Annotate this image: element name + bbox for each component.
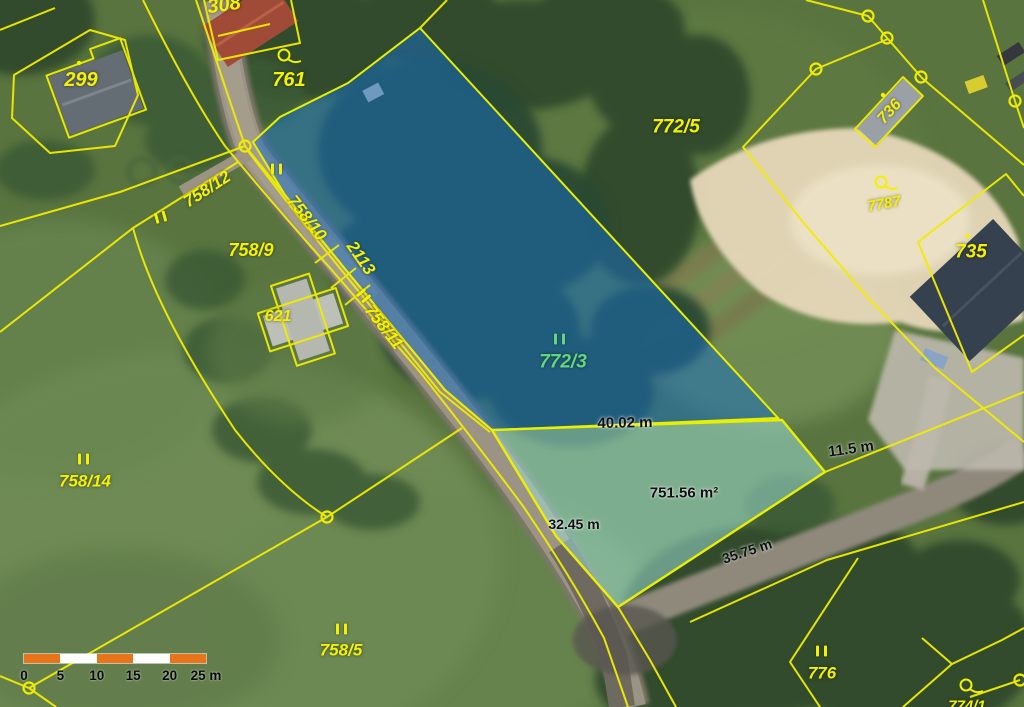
aerial-map-image (0, 0, 1024, 707)
scale-tick-label: 5 (57, 668, 65, 683)
scale-tick-label: 10 (89, 668, 104, 683)
scale-bar-segments (24, 654, 206, 663)
scale-tick-label: 0 (20, 668, 28, 683)
scale-tick-label: 15 (126, 668, 141, 683)
scale-bar-segment (170, 654, 206, 663)
scale-bar-segment (60, 654, 96, 663)
scale-bar-segment (24, 654, 60, 663)
scale-tick-label: 20 (162, 668, 177, 683)
scale-bar: 0510152025 m (24, 652, 214, 692)
scale-bar-segment (97, 654, 133, 663)
scale-bar-segment (133, 654, 169, 663)
map-canvas[interactable]: 308299761758/12758/102113758/11758/96217… (0, 0, 1024, 707)
scale-tick-label: 25 m (191, 668, 222, 683)
scale-bar-ticks: 0510152025 m (24, 668, 214, 686)
